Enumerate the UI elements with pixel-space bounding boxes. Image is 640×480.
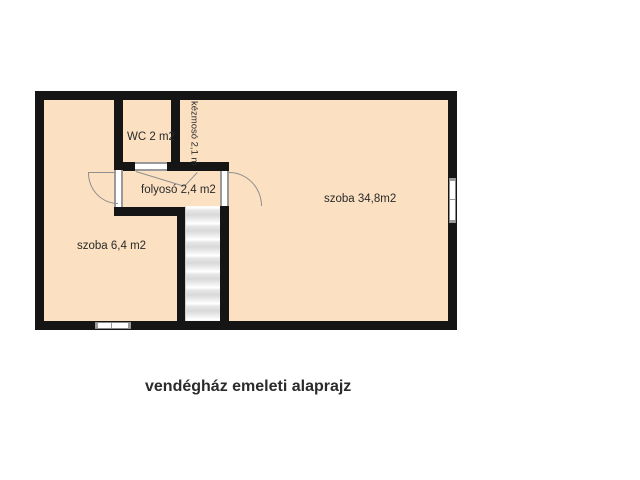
room-label-folyoso: folyosó 2,4 m2 <box>141 184 216 197</box>
wall-stairs-left <box>177 207 185 321</box>
room-label-szoba-nagy: szoba 34,8m2 <box>324 193 396 206</box>
wall-corridor-bottom <box>114 207 185 216</box>
wall-wc-left <box>114 100 123 170</box>
room-label-szoba-kis: szoba 6,4 m2 <box>77 240 146 253</box>
left-room-door-leaf <box>88 172 115 173</box>
plan-caption: vendégház emeleti alaprajz <box>145 378 351 396</box>
window-mullion <box>450 199 455 200</box>
wall-stairs-right <box>220 206 229 321</box>
staircase <box>185 206 220 321</box>
window-symbol-right <box>449 178 456 223</box>
room-label-kezmoso: kézmosó 2,1 m <box>188 101 198 165</box>
big-room-door-opening <box>220 171 229 206</box>
floorplan-outline <box>35 91 457 330</box>
window-symbol-bottom <box>95 322 131 329</box>
room-label-wc: WC 2 m2 <box>127 131 175 144</box>
window-mullion <box>111 323 112 328</box>
wc-door-opening <box>135 162 167 171</box>
